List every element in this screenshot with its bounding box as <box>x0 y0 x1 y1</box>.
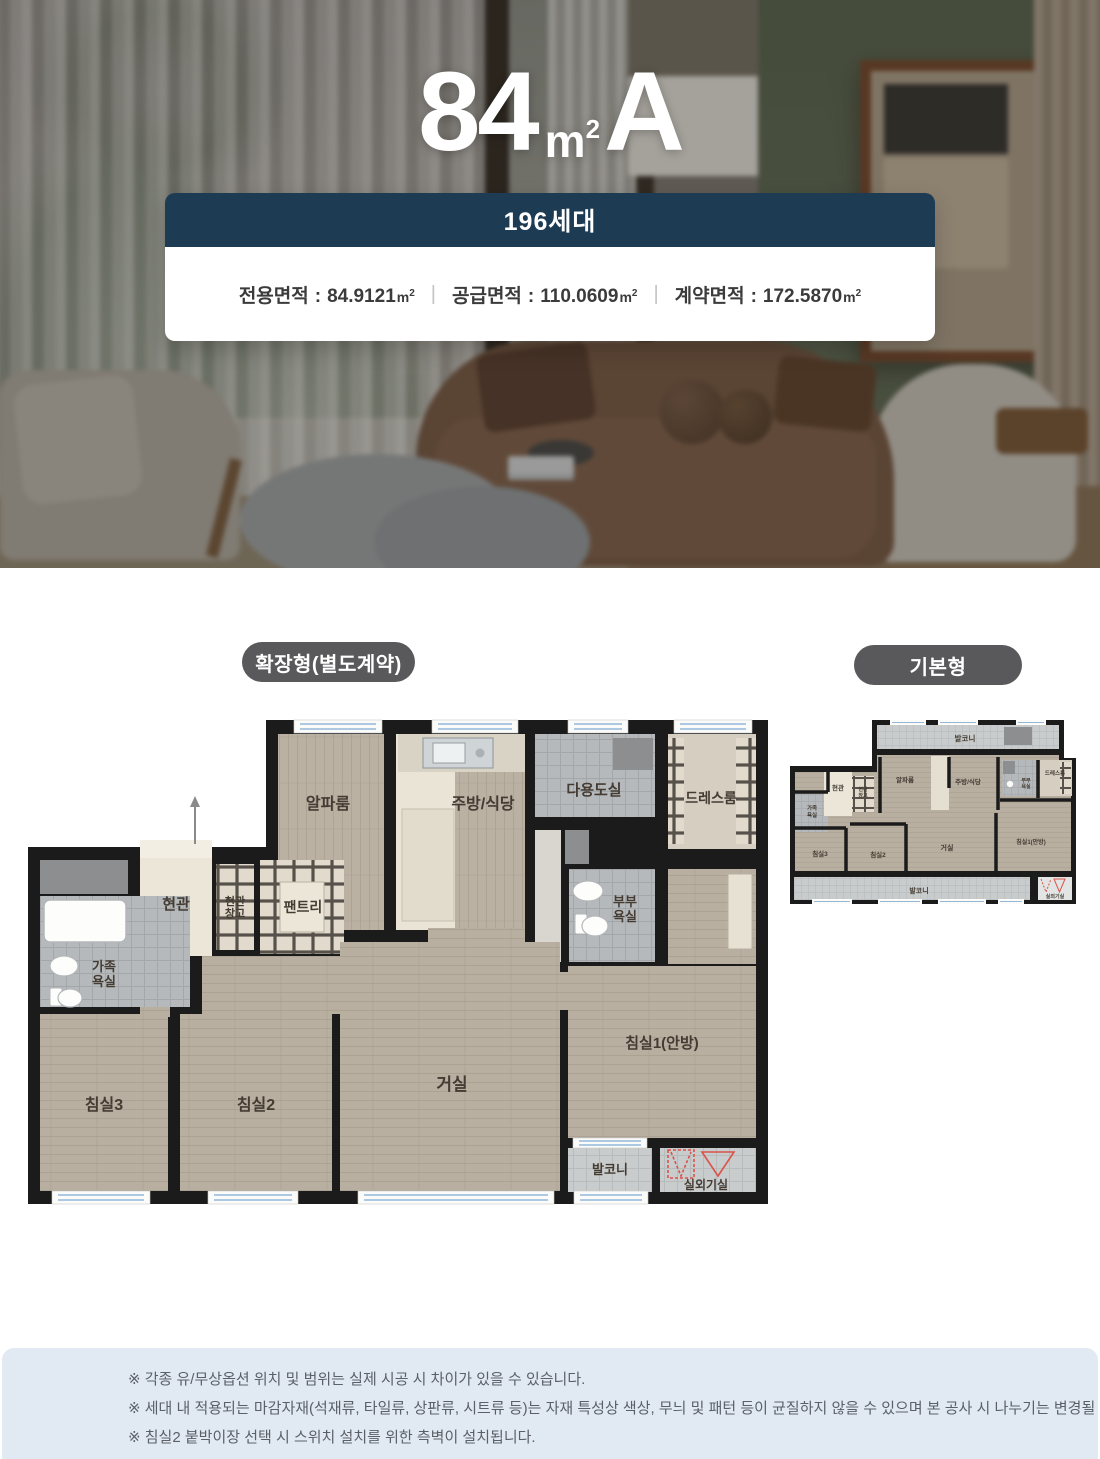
basic-label-entry-storage: 현관 <box>858 786 868 793</box>
room-label-bedroom1: 침실1(안방) <box>625 1034 699 1052</box>
basic-label-living: 거실 <box>941 843 954 852</box>
room-label-kitchen: 주방/식당 <box>451 795 515 813</box>
basic-label-bedroom3: 침실3 <box>812 849 828 858</box>
entry-arrow <box>190 796 200 844</box>
disclaimer-line: ※ 각종 유/무상옵션 위치 및 범위는 실제 시공 시 차이가 있을 수 있습… <box>128 1365 1058 1394</box>
room-label-pantry: 팬트리 <box>284 899 323 915</box>
basic-label-balcony-top: 발코니 <box>955 733 976 743</box>
room-label-bedroom3: 침실3 <box>85 1095 123 1114</box>
basic-floor-plan: 발코니 현관 현관 창고 알파룸 주방/식당 부부 욕실 드레스룸 가족 욕실 … <box>788 718 1080 908</box>
divider: | <box>653 283 658 306</box>
basic-label-family-bath: 욕실 <box>807 811 817 819</box>
disclaimer-line: ※ 침실2 붙박이장 선택 시 스위치 설치를 위한 측벽이 설치됩니다. <box>128 1423 1058 1452</box>
basic-label-balcony-bottom: 발코니 <box>909 886 928 895</box>
room-label-master-bath: 부부 <box>613 894 637 909</box>
households-banner: 196세대 <box>165 193 935 247</box>
title-number: 84 <box>418 56 537 168</box>
room-label-entry-storage: 창고 <box>225 906 245 920</box>
basic-label-outdoor-unit: 실외기실 <box>1046 893 1065 900</box>
room-label-bedroom2: 침실2 <box>237 1095 275 1114</box>
room-label-family-bath: 가족 <box>92 959 116 974</box>
divider: | <box>431 283 436 306</box>
room-label-master-bath: 욕실 <box>613 909 637 924</box>
room-label-utility: 다용도실 <box>566 782 621 799</box>
area-item-exclusive: 전용면적:84.9121m2 <box>239 281 415 308</box>
basic-label-dress: 드레스룸 <box>1045 769 1065 777</box>
room-label-entry: 현관 <box>162 896 190 913</box>
basic-label-bedroom1: 침실1(안방) <box>1016 838 1045 846</box>
disclaimer-panel: ※ 각종 유/무상옵션 위치 및 범위는 실제 시공 시 차이가 있을 수 있습… <box>2 1348 1098 1459</box>
room-label-outdoor-unit: 실외기실 <box>684 1177 728 1192</box>
title-square-meter-unit: m2 <box>545 118 600 164</box>
room-label-family-bath: 욕실 <box>92 974 116 989</box>
extended-floor-plan: 알파룸 주방/식당 다용도실 드레스룸 현관 현관 창고 팬트리 부부 욕실 가… <box>28 714 768 1210</box>
area-info: 전용면적:84.9121m2 | 공급면적:110.0609m2 | 계약면적:… <box>165 247 935 341</box>
basic-balcony-bottom <box>790 873 1076 904</box>
room-label-alpha: 알파룸 <box>306 795 350 813</box>
disclaimer-line: ※ 세대 내 적용되는 마감자재(석재류, 타일류, 상판류, 시트류 등)는 … <box>128 1394 1058 1423</box>
hero-photo: 84 m2 A 196세대 전용면적:84.9121m2 | 공급면적:110.… <box>0 0 1100 568</box>
basic-label-alpha: 알파룸 <box>896 775 914 784</box>
basic-label-bedroom2: 침실2 <box>870 850 886 859</box>
area-item-contract: 계약면적:172.5870m2 <box>675 281 862 308</box>
basic-label-family-bath: 가족 <box>807 804 817 812</box>
extended-plan-badge[interactable]: 확장형(별도계약) <box>242 642 415 682</box>
room-label-living: 거실 <box>436 1075 467 1094</box>
basic-label-master-bath: 부부 <box>1021 777 1031 784</box>
basic-label-entry-storage: 창고 <box>858 792 868 799</box>
room-label-balcony: 발코니 <box>592 1162 628 1177</box>
floor-plan-page: 84 m2 A 196세대 전용면적:84.9121m2 | 공급면적:110.… <box>0 0 1100 1459</box>
unit-info-card: 196세대 전용면적:84.9121m2 | 공급면적:110.0609m2 |… <box>165 193 935 341</box>
room-label-dress: 드레스룸 <box>685 790 737 806</box>
area-item-supply: 공급면적:110.0609m2 <box>452 281 637 308</box>
basic-label-kitchen: 주방/식당 <box>955 777 981 786</box>
basic-label-master-bath: 욕실 <box>1021 783 1031 790</box>
title-letter: A <box>604 56 682 168</box>
basic-label-entry: 현관 <box>832 783 844 792</box>
room-label-entry-storage: 현관 <box>225 894 245 908</box>
unit-type-title: 84 m2 A <box>0 56 1100 168</box>
basic-plan-badge[interactable]: 기본형 <box>854 645 1022 685</box>
